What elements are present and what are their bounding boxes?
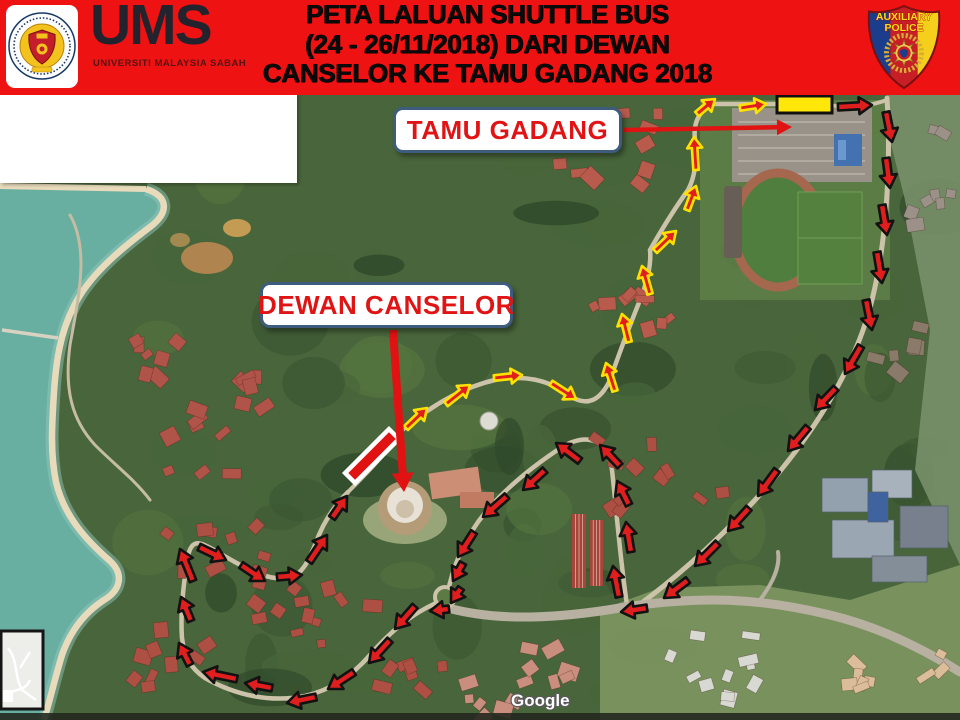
label-tamu-gadang: TAMU GADANG [393, 107, 622, 153]
ums-crest-icon [6, 5, 78, 88]
title-line-2: (24 - 26/11/2018) DARI DEWAN [200, 30, 775, 60]
tamu-gadang-destination-marker [777, 96, 832, 113]
ums-wordmark: UMS [90, 0, 211, 58]
auxiliary-police-badge-icon: AUXILIARY POLICE [863, 3, 945, 92]
ums-logo [6, 5, 78, 88]
slide: Google UMS UNIVERSITI MALAYSIA SABAH PET… [0, 0, 960, 720]
slide-title: PETA LALUAN SHUTTLE BUS (24 - 26/11/2018… [200, 0, 775, 89]
label-dewan-canselor: DEWAN CANSELOR [260, 282, 513, 328]
blank-overlay-box [0, 93, 297, 183]
title-line-1: PETA LALUAN SHUTTLE BUS [200, 0, 775, 30]
slide-header: UMS UNIVERSITI MALAYSIA SABAH PETA LALUA… [0, 0, 960, 95]
google-watermark: Google [511, 691, 570, 710]
title-line-3: CANSELOR KE TAMU GADANG 2018 [200, 59, 775, 89]
svg-text:POLICE: POLICE [884, 22, 923, 34]
